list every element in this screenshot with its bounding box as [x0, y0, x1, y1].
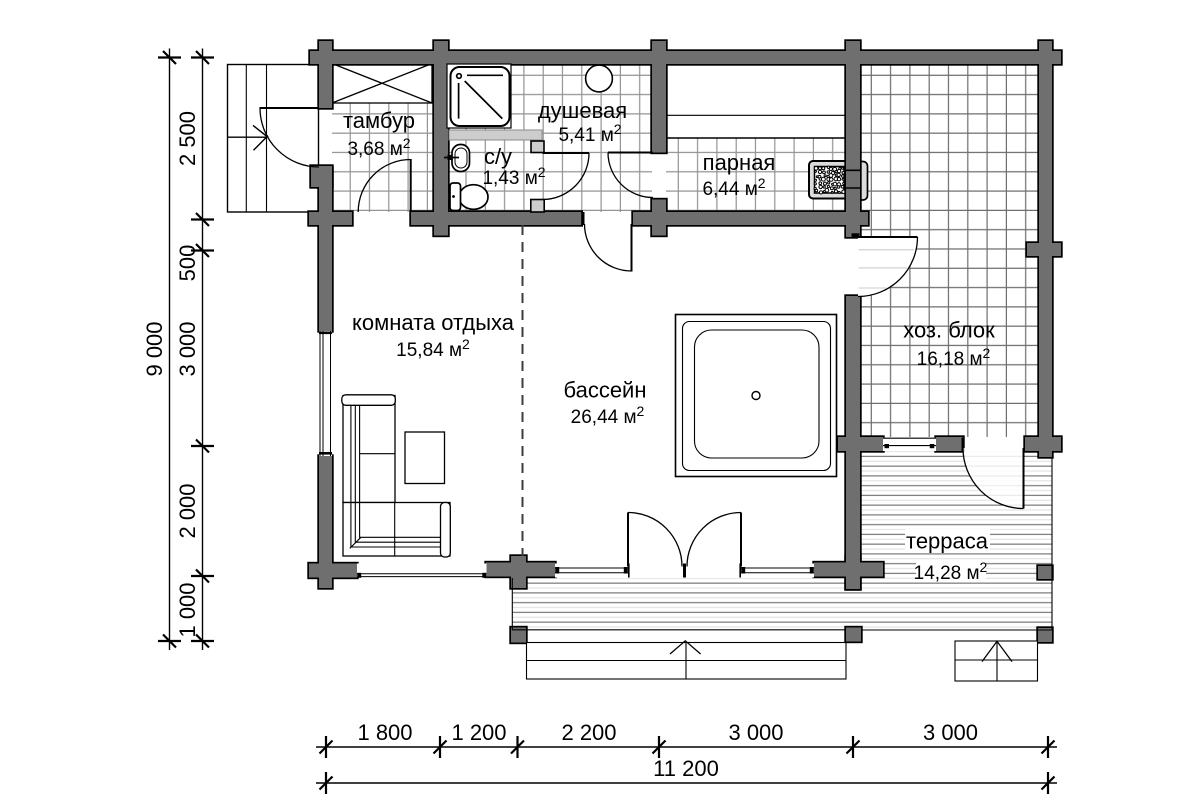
svg-text:3 000: 3 000	[728, 720, 783, 745]
svg-text:26,44 м2: 26,44 м2	[571, 403, 645, 428]
svg-text:6,44 м2: 6,44 м2	[702, 175, 765, 200]
svg-text:тамбур: тамбур	[343, 108, 415, 133]
svg-text:3 000: 3 000	[923, 720, 978, 745]
svg-text:парная: парная	[703, 150, 776, 175]
svg-text:5,41 м2: 5,41 м2	[558, 121, 621, 146]
svg-text:11 200: 11 200	[653, 756, 719, 781]
svg-text:1 200: 1 200	[451, 720, 506, 745]
svg-text:2 500: 2 500	[175, 111, 200, 166]
svg-text:с/у: с/у	[484, 144, 512, 169]
svg-text:1,43 м2: 1,43 м2	[482, 164, 545, 189]
svg-text:14,28 м2: 14,28 м2	[914, 559, 988, 584]
svg-text:1 800: 1 800	[357, 720, 412, 745]
svg-text:16,18 м2: 16,18 м2	[917, 345, 991, 370]
svg-text:хоз. блок: хоз. блок	[903, 318, 995, 343]
svg-text:бассейн: бассейн	[563, 378, 646, 403]
svg-text:2 000: 2 000	[175, 483, 200, 538]
svg-text:3,68 м2: 3,68 м2	[347, 135, 410, 160]
svg-text:терраса: терраса	[906, 529, 989, 554]
svg-text:9 000: 9 000	[142, 321, 167, 376]
svg-text:15,84 м2: 15,84 м2	[396, 336, 470, 361]
svg-text:3 000: 3 000	[175, 321, 200, 376]
svg-text:2 200: 2 200	[561, 720, 616, 745]
svg-text:500: 500	[175, 245, 200, 282]
svg-text:1 000: 1 000	[175, 582, 200, 637]
svg-text:комната отдыха: комната отдыха	[352, 310, 515, 335]
svg-text:душевая: душевая	[538, 98, 627, 123]
